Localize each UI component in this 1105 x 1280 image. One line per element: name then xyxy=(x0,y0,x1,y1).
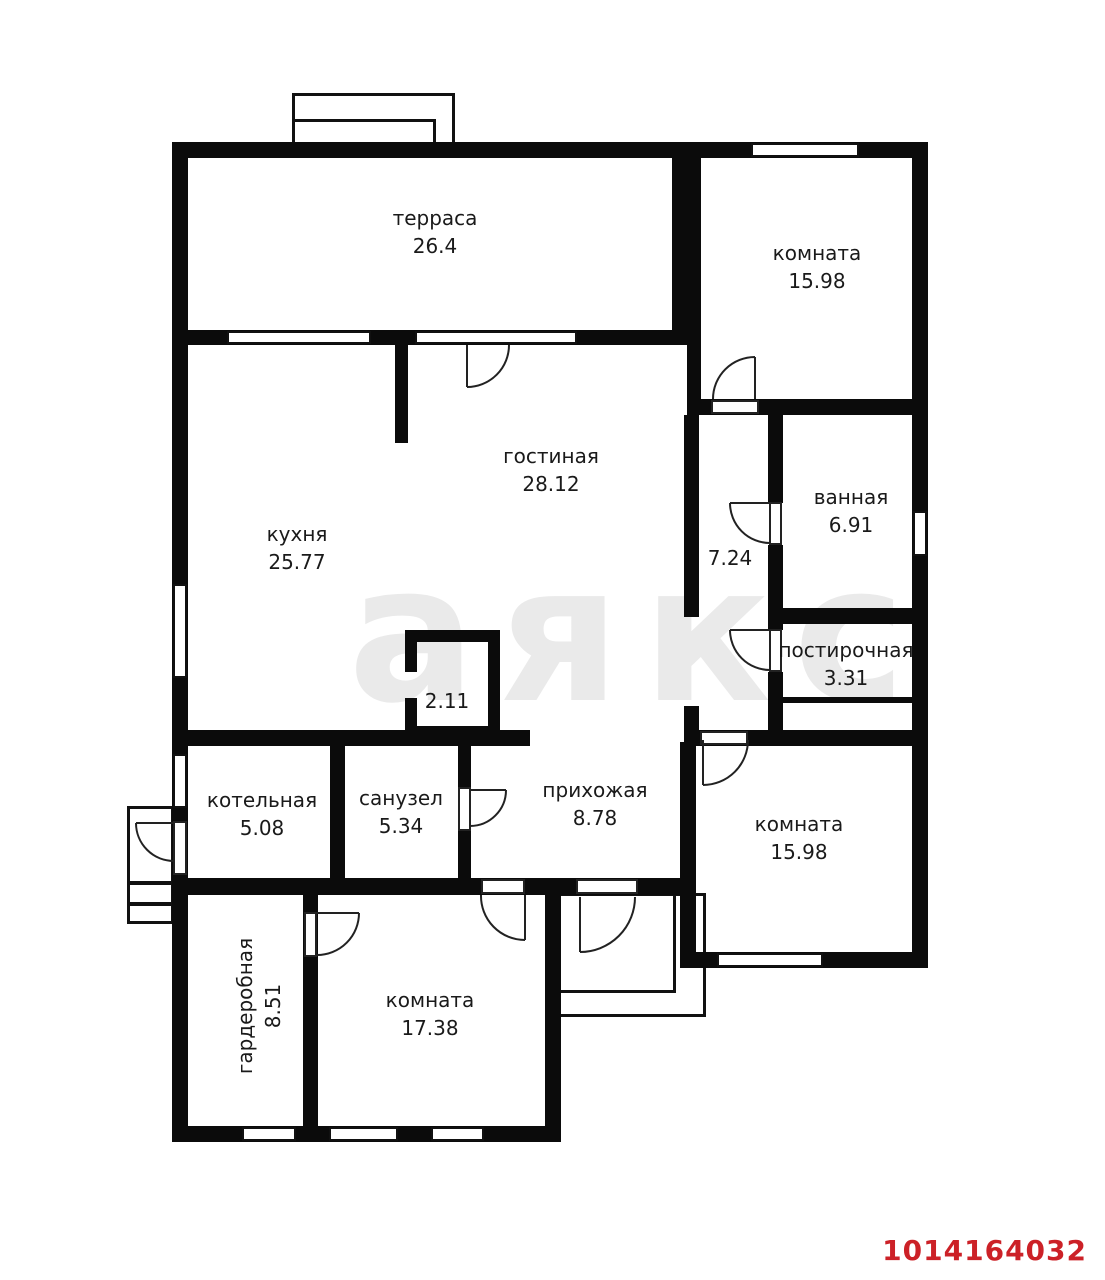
wall-segment xyxy=(395,345,408,443)
door-threshold xyxy=(700,731,748,745)
window xyxy=(227,331,371,344)
window xyxy=(717,953,823,967)
wall-segment xyxy=(684,415,699,617)
step-line xyxy=(127,881,174,885)
room-label-bathroom: ванная6.91 xyxy=(771,483,931,539)
door-threshold xyxy=(304,912,317,957)
wall-segment xyxy=(545,878,561,1142)
door-threshold xyxy=(576,879,638,894)
room-label-laundry: постирочная3.31 xyxy=(766,636,926,692)
window xyxy=(173,584,187,678)
floor-plan: аякс xyxy=(0,0,1105,1280)
room-label-hall-7-24: 7.24 xyxy=(670,544,790,572)
wall-segment xyxy=(405,630,417,672)
room-label-wardrobe: гардеробная8.51 xyxy=(231,896,287,1116)
wall-segment xyxy=(405,630,500,642)
wall-segment xyxy=(405,726,500,738)
room-label-entrance-hall: прихожая8.78 xyxy=(495,776,695,832)
room-label-living-room: гостиная28.12 xyxy=(451,442,651,498)
door-arc xyxy=(713,357,755,399)
step-line xyxy=(127,902,174,906)
window xyxy=(751,143,859,157)
room-label-kitchen: кухня25.77 xyxy=(197,520,397,576)
door-threshold xyxy=(481,879,525,894)
room-label-bedroom-top: комната15.98 xyxy=(717,239,917,295)
listing-id: 1014164032 xyxy=(882,1234,1087,1267)
door-arc xyxy=(481,895,525,940)
door-arc xyxy=(467,345,509,387)
wall-segment xyxy=(488,630,500,738)
window xyxy=(329,1127,398,1141)
room-label-terrace: терраса26.4 xyxy=(335,204,535,260)
window xyxy=(415,331,577,344)
door-threshold xyxy=(711,400,759,414)
room-label-closet-2-11: 2.11 xyxy=(387,687,507,715)
wall-segment xyxy=(672,142,701,345)
door-arc xyxy=(703,740,748,785)
room-label-bedroom-bottom: комната17.38 xyxy=(330,986,530,1042)
window xyxy=(431,1127,484,1141)
porch-outline xyxy=(550,893,676,993)
wall-segment xyxy=(768,608,928,624)
door-arc xyxy=(317,913,359,955)
window xyxy=(242,1127,296,1141)
wall-segment xyxy=(783,697,913,703)
room-label-wc: санузел5.34 xyxy=(311,784,491,840)
room-label-bedroom-right: комната15.98 xyxy=(699,810,899,866)
